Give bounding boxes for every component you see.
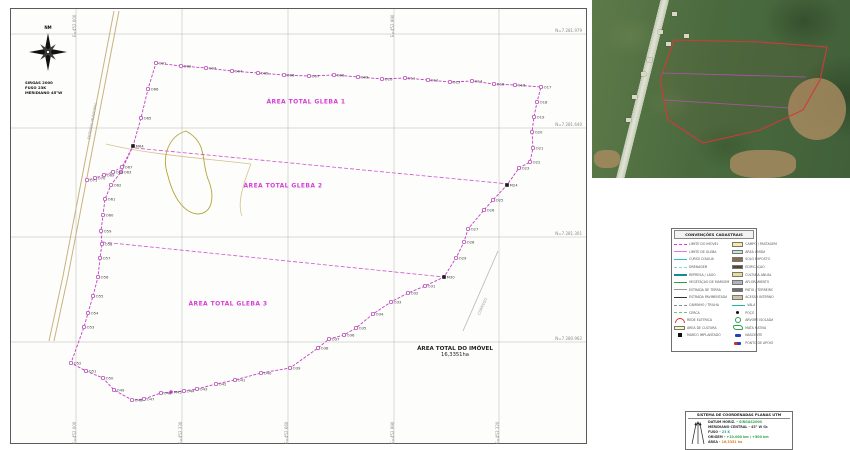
legend-item: REPRESA / LAGO xyxy=(674,271,729,279)
svg-text:O01: O01 xyxy=(159,60,167,65)
svg-text:O41: O41 xyxy=(238,377,246,382)
legend-swatch xyxy=(732,340,743,346)
legend-swatch xyxy=(732,317,743,323)
svg-text:O06: O06 xyxy=(287,72,295,77)
legend-item: CAMINHO / TRILHA xyxy=(674,301,729,309)
svg-text:O57: O57 xyxy=(103,255,111,260)
legend-swatch xyxy=(674,289,687,290)
legend-item: CERCA xyxy=(674,309,729,317)
svg-text:O43: O43 xyxy=(200,386,208,391)
svg-text:M24: M24 xyxy=(510,182,519,187)
datum-text: SIRGAS 2000 FUSO 23K MERIDIANO 45°W xyxy=(17,80,79,95)
legend-item-label: CAMPO / PASTAGEM xyxy=(745,242,777,246)
svg-text:M64: M64 xyxy=(136,143,145,148)
legend-swatch xyxy=(674,305,687,306)
legend-item-label: ESTRADA DE TERRA xyxy=(689,288,721,292)
svg-text:O05: O05 xyxy=(261,70,269,75)
legend-item-label: ÁREA DE CULTURA xyxy=(687,326,717,330)
legend-item: ACESSO INTERNO xyxy=(732,294,777,302)
map-drawing: O01O02O03O04O05O06O07O08O09O10O11O12O13O… xyxy=(11,9,586,443)
legend-item-label: LIMITE DE GLEBA xyxy=(689,250,717,254)
svg-text:O70: O70 xyxy=(98,175,106,180)
legend-item-label: VALA xyxy=(747,303,755,307)
legend-columns: LIMITE DO IMÓVELLIMITE DE GLEBACURSO D'Á… xyxy=(674,241,754,347)
legend-item: ÁREA ÚMIDA xyxy=(732,248,777,256)
svg-text:O58: O58 xyxy=(105,241,113,246)
survey-map-sheet: O01O02O03O04O05O06O07O08O09O10O11O12O13O… xyxy=(0,0,850,450)
svg-text:O39: O39 xyxy=(293,365,301,370)
svg-text:O25: O25 xyxy=(496,197,504,202)
utm-box: SISTEMA DE COORDENADAS PLANAS UTM DATUM … xyxy=(685,411,793,450)
svg-text:M30: M30 xyxy=(447,274,456,279)
svg-text:O66: O66 xyxy=(151,86,159,91)
svg-text:O03: O03 xyxy=(209,65,217,70)
svg-text:O54: O54 xyxy=(91,310,99,315)
legend-swatch xyxy=(674,259,687,260)
total-area-label: ÁREA TOTAL DO IMÓVEL 16,3351ha xyxy=(409,346,501,358)
svg-text:O69: O69 xyxy=(107,172,115,177)
svg-text:O62: O62 xyxy=(114,182,122,187)
easting-label-2: E=452.330 xyxy=(178,422,183,444)
legend-item-label: DRENAGEM xyxy=(689,265,707,269)
svg-text:O12: O12 xyxy=(431,77,439,82)
northing-label-1: N=7.281.979 xyxy=(555,28,582,33)
legend-swatch xyxy=(732,325,743,331)
svg-text:O15: O15 xyxy=(497,81,505,86)
svg-text:O27: O27 xyxy=(471,226,479,231)
legend-swatch xyxy=(674,312,687,313)
easting-label-4: E=452.990 xyxy=(390,422,395,444)
svg-text:O23: O23 xyxy=(522,165,530,170)
svg-text:O56: O56 xyxy=(101,274,109,279)
svg-text:O32: O32 xyxy=(411,290,419,295)
legend-swatch xyxy=(732,242,743,247)
legend-item-label: CURSO D'ÁGUA xyxy=(689,257,714,261)
legend-swatch xyxy=(732,250,743,255)
datum-line-3: MERIDIANO 45°W xyxy=(25,90,79,95)
northing-label-2: N=7.281.640 xyxy=(555,122,582,127)
svg-text:O63: O63 xyxy=(124,169,132,174)
legend-swatch xyxy=(732,310,743,316)
legend-item: MATA NATIVA xyxy=(732,324,777,332)
legend-item-label: REPRESA / LAGO xyxy=(689,273,716,277)
svg-text:O09: O09 xyxy=(361,74,369,79)
legend-item-label: CAMINHO / TRILHA xyxy=(689,303,719,307)
legend-item-label: POÇO xyxy=(745,311,754,315)
legend-item-label: PÁTIO / TERREIRO xyxy=(745,288,773,292)
svg-text:O61: O61 xyxy=(108,196,116,201)
legend-item: ÁREA DE CULTURA xyxy=(674,324,729,332)
svg-text:O48: O48 xyxy=(135,397,143,402)
legend-swatch xyxy=(732,305,745,306)
legend-swatch xyxy=(674,267,687,268)
satellite-inset xyxy=(592,0,850,178)
legend-item-label: MARCO IMPLANTADO xyxy=(687,333,721,337)
svg-text:O59: O59 xyxy=(104,228,112,233)
northing-label-4: N=7.280.962 xyxy=(555,336,582,341)
legend-column-left: LIMITE DO IMÓVELLIMITE DE GLEBACURSO D'Á… xyxy=(674,241,729,347)
legend-item-label: VEGETAÇÃO DE MARGEM xyxy=(689,280,729,284)
svg-text:O04: O04 xyxy=(235,68,243,73)
legend-item-label: ESTRADA PAVIMENTADA xyxy=(689,295,727,299)
svg-text:O34: O34 xyxy=(376,311,384,316)
legend-item: CAMPO / PASTAGEM xyxy=(732,241,777,249)
legend-swatch xyxy=(732,265,743,270)
legend-swatch xyxy=(674,244,687,245)
svg-text:O16: O16 xyxy=(518,82,526,87)
svg-text:O10: O10 xyxy=(385,76,393,81)
legend-swatch xyxy=(732,288,743,293)
legend-swatch xyxy=(674,251,687,252)
legend-item: LIMITE DO IMÓVEL xyxy=(674,241,729,249)
svg-text:O22: O22 xyxy=(533,159,541,164)
svg-text:O29: O29 xyxy=(459,255,467,260)
svg-text:O50: O50 xyxy=(106,375,114,380)
svg-text:O68: O68 xyxy=(116,169,124,174)
svg-text:O67: O67 xyxy=(125,164,133,169)
legend-item: AFLORAMENTO xyxy=(732,278,777,286)
legend-swatch xyxy=(674,282,687,283)
inset-boundary-overlay xyxy=(592,0,850,178)
svg-text:O31: O31 xyxy=(428,283,436,288)
legend-item-label: CULTURA ANUAL xyxy=(745,273,771,277)
easting-label-top-4: E=452.990 xyxy=(390,15,395,37)
svg-text:O51: O51 xyxy=(89,368,97,373)
svg-text:O11: O11 xyxy=(408,75,416,80)
gleba1-label: ÁREA TOTAL GLEBA 1 xyxy=(267,99,346,106)
legend-swatch xyxy=(732,295,743,300)
legend-item-label: SOLO EXPOSTO xyxy=(745,257,770,261)
legend-box: CONVENÇÕES CADASTRAIS LIMITE DO IMÓVELLI… xyxy=(671,228,757,352)
legend-item-label: NASCENTE xyxy=(745,333,762,337)
legend-item: CULTURA ANUAL xyxy=(732,271,777,279)
legend-item: CURSO D'ÁGUA xyxy=(674,256,729,264)
legend-swatch xyxy=(732,280,743,285)
legend-item-label: ACESSO INTERNO xyxy=(745,295,773,299)
legend-swatch xyxy=(674,326,685,331)
legend-title: CONVENÇÕES CADASTRAIS xyxy=(674,230,754,239)
svg-text:O60: O60 xyxy=(106,212,114,217)
easting-label-top-1: E=452.000 xyxy=(72,15,77,37)
legend-item: DRENAGEM xyxy=(674,263,729,271)
svg-text:O71: O71 xyxy=(90,177,98,182)
easting-label-3: E=452.660 xyxy=(284,422,289,444)
legend-swatch xyxy=(674,274,687,276)
legend-item: MARCO IMPLANTADO xyxy=(674,332,729,340)
legend-item: ESTRADA PAVIMENTADA xyxy=(674,294,729,302)
total-area-value: 16,3351ha xyxy=(409,352,501,358)
legend-swatch xyxy=(732,272,743,277)
legend-item-label: MATA NATIVA xyxy=(745,326,766,330)
legend-item-label: LIMITE DO IMÓVEL xyxy=(689,242,718,246)
svg-text:O40: O40 xyxy=(264,370,272,375)
svg-text:O26: O26 xyxy=(487,207,495,212)
svg-text:O02: O02 xyxy=(184,63,192,68)
legend-column-right: CAMPO / PASTAGEMÁREA ÚMIDASOLO EXPOSTOED… xyxy=(732,241,777,347)
svg-text:O35: O35 xyxy=(359,325,367,330)
legend-item-label: AFLORAMENTO xyxy=(745,280,769,284)
utm-rows: DATUM HORIZ. - SIRGAS2000MERIDIANO CENTR… xyxy=(708,420,790,446)
svg-text:O52: O52 xyxy=(74,360,82,365)
legend-item: EDIFICAÇÃO xyxy=(732,263,777,271)
svg-text:O37: O37 xyxy=(332,336,340,341)
svg-text:O28: O28 xyxy=(467,239,475,244)
legend-item: NASCENTE xyxy=(732,332,777,340)
legend-item: SOLO EXPOSTO xyxy=(732,256,777,264)
utm-row: ÁREA - 16,3351 ha xyxy=(708,440,790,445)
svg-text:O14: O14 xyxy=(475,78,483,83)
compass-rose-icon xyxy=(26,30,70,74)
gleba2-label: ÁREA TOTAL GLEBA 2 xyxy=(244,183,323,190)
legend-item-label: CERCA xyxy=(689,311,700,315)
legend-item: PONTO DE APOIO xyxy=(732,339,777,347)
legend-item: ESTRADA DE TERRA xyxy=(674,286,729,294)
legend-swatch xyxy=(674,332,685,338)
legend-item-label: PONTO DE APOIO xyxy=(745,341,773,345)
easting-label-5: E=453.320 xyxy=(495,422,500,444)
svg-text:O33: O33 xyxy=(394,299,402,304)
svg-text:O55: O55 xyxy=(96,293,104,298)
svg-text:O46: O46 xyxy=(164,390,172,395)
svg-text:O44: O44 xyxy=(187,388,195,393)
svg-text:O36: O36 xyxy=(347,332,355,337)
legend-item: ÁRVORE ISOLADA xyxy=(732,316,777,324)
compass-block: NM SIRGAS 2000 FUSO 23K MERIDIANO 45°W xyxy=(17,25,79,95)
legend-item: VEGETAÇÃO DE MARGEM xyxy=(674,278,729,286)
svg-text:O18: O18 xyxy=(540,99,548,104)
svg-text:M45: M45 xyxy=(174,389,183,394)
svg-text:O47: O47 xyxy=(147,396,155,401)
legend-item: POÇO xyxy=(732,309,777,317)
svg-text:O53: O53 xyxy=(87,324,95,329)
svg-text:O07: O07 xyxy=(312,73,320,78)
easting-label-1: E=452.000 xyxy=(72,422,77,444)
svg-text:O21: O21 xyxy=(536,145,544,150)
svg-text:O17: O17 xyxy=(544,84,552,89)
legend-swatch xyxy=(732,332,743,338)
legend-item-label: ÁREA ÚMIDA xyxy=(745,250,765,254)
svg-text:O08: O08 xyxy=(337,72,345,77)
svg-text:O65: O65 xyxy=(144,115,152,120)
legend-swatch xyxy=(732,257,743,262)
legend-item: VALA xyxy=(732,301,777,309)
svg-text:O20: O20 xyxy=(535,129,543,134)
svg-text:O19: O19 xyxy=(537,114,545,119)
svg-text:O42: O42 xyxy=(219,381,227,386)
map-frame: O01O02O03O04O05O06O07O08O09O10O11O12O13O… xyxy=(10,8,587,444)
legend-item-label: EDIFICAÇÃO xyxy=(745,265,764,269)
svg-text:O38: O38 xyxy=(321,345,329,350)
legend-item: REDE ELÉTRICA xyxy=(674,316,729,324)
legend-item-label: REDE ELÉTRICA xyxy=(687,318,712,322)
svg-text:O49: O49 xyxy=(117,387,125,392)
meridian-convergence-icon xyxy=(688,420,708,446)
legend-swatch xyxy=(674,317,685,323)
legend-item: LIMITE DE GLEBA xyxy=(674,248,729,256)
legend-item-label: ÁRVORE ISOLADA xyxy=(745,318,773,322)
legend-swatch xyxy=(674,297,687,298)
utm-title: SISTEMA DE COORDENADAS PLANAS UTM xyxy=(688,413,790,419)
svg-text:O13: O13 xyxy=(453,79,461,84)
gleba3-label: ÁREA TOTAL GLEBA 3 xyxy=(189,301,268,308)
legend-item: PÁTIO / TERREIRO xyxy=(732,286,777,294)
northing-label-3: N=7.281.301 xyxy=(555,231,582,236)
